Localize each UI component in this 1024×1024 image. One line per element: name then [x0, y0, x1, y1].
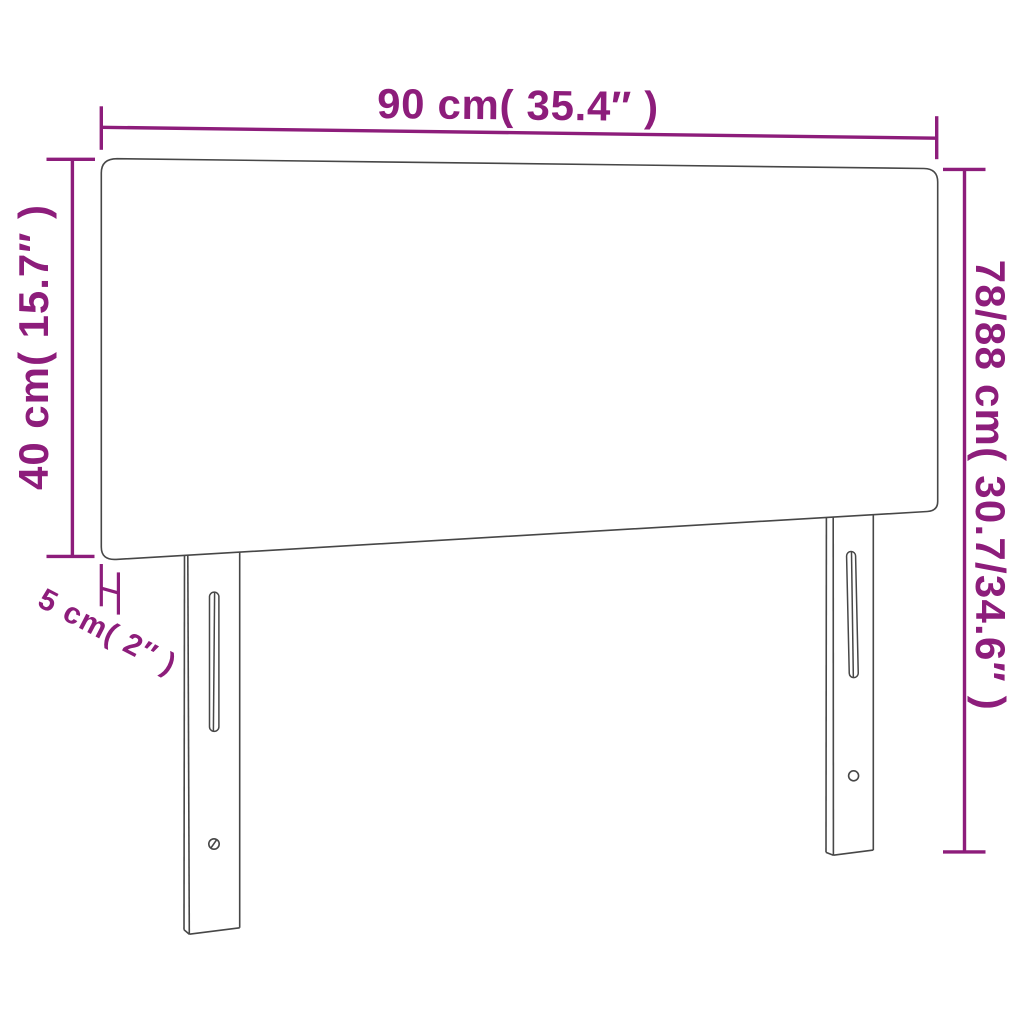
- svg-text:40 cm( 15.7″ ): 40 cm( 15.7″ ): [10, 205, 57, 490]
- svg-text:90 cm( 35.4″ ): 90 cm( 35.4″ ): [377, 80, 658, 130]
- svg-text:78/88 cm( 30.7/34.6″ ): 78/88 cm( 30.7/34.6″ ): [967, 260, 1014, 710]
